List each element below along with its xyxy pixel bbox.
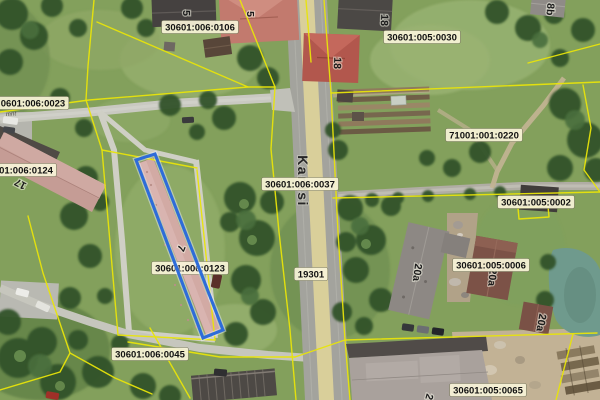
svg-text:0601:006:0023: 0601:006:0023 [1, 98, 65, 109]
map-svg: Kantsi mnt 5518188b17720a20a20a2 30601:0… [0, 0, 600, 400]
parcel-label: 30601:005:0002 [498, 196, 575, 209]
map-viewport[interactable]: Kantsi mnt 5518188b17720a20a20a2 30601:0… [0, 0, 600, 400]
svg-text:30601:005:0030: 30601:005:0030 [387, 32, 457, 43]
parcel-label: 30601:006:0045 [112, 348, 189, 361]
svg-text:30601:006:0037: 30601:006:0037 [265, 179, 335, 190]
parcel-label: 30601:006:0106 [162, 21, 239, 34]
shed-small [164, 42, 176, 52]
svg-text:19301: 19301 [298, 269, 325, 280]
shed-brown [203, 36, 232, 58]
parcel-label: 30601:006:0123 [152, 262, 229, 275]
parcel-label: 30601:005:0030 [384, 31, 461, 44]
building-number: 18 [378, 14, 390, 26]
parcel-label: 71001:001:0220 [446, 129, 523, 142]
svg-text:30601:006:0106: 30601:006:0106 [165, 22, 235, 33]
parcel-label: 30601:006:0037 [262, 178, 339, 191]
building-number: 5 [180, 10, 192, 16]
building-number: 18 [331, 57, 343, 69]
svg-text:30601:005:0002: 30601:005:0002 [501, 197, 571, 208]
building-number: 8b [543, 3, 556, 16]
svg-text:01:006:0124: 01:006:0124 [0, 165, 54, 176]
svg-text:30601:005:0065: 30601:005:0065 [453, 385, 523, 396]
svg-text:30601:006:0123: 30601:006:0123 [155, 263, 225, 274]
parcel-label: 19301 [294, 268, 328, 281]
parcel-label: 30601:005:0065 [450, 384, 527, 397]
svg-text:30601:005:0006: 30601:005:0006 [456, 260, 526, 271]
svg-text:71001:001:0220: 71001:001:0220 [449, 130, 519, 141]
parcel-label: 30601:005:0006 [453, 259, 530, 272]
building-number: 5 [244, 11, 256, 17]
building-number: 20a [410, 263, 424, 282]
parcel-label: 01:006:0124 [0, 164, 56, 177]
svg-text:30601:006:0045: 30601:006:0045 [115, 349, 185, 360]
street-fragment-label: mnt [6, 109, 18, 118]
parcel-label: 0601:006:0023 [0, 97, 69, 110]
